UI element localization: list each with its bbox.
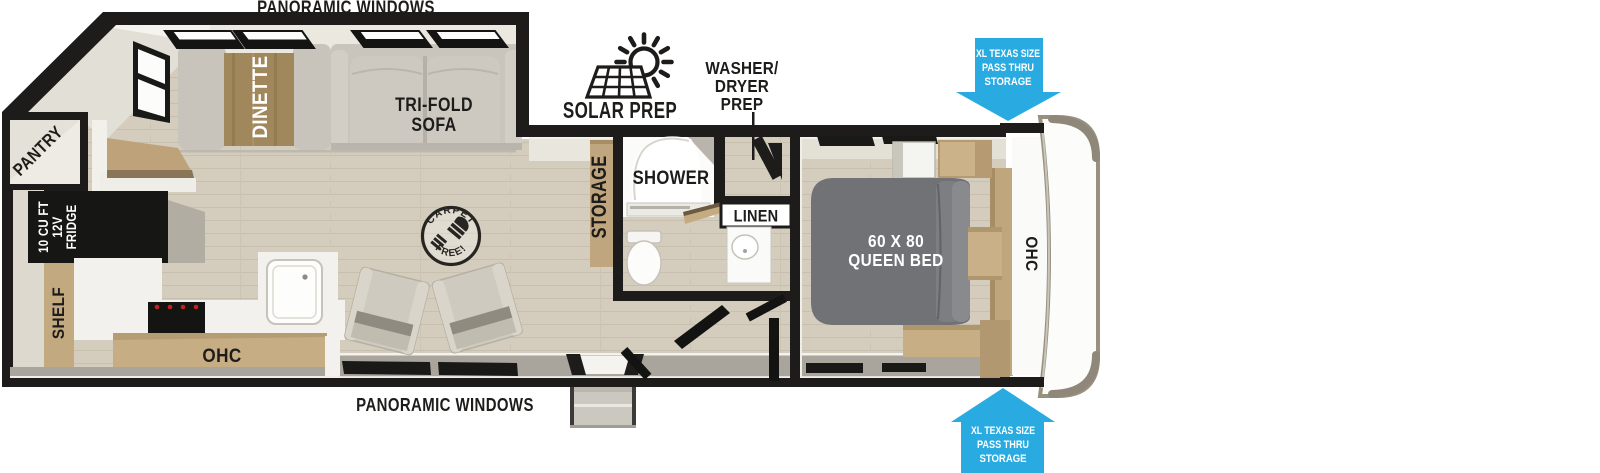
svg-text:10 CU FT: 10 CU FT [36,201,51,253]
svg-text:TRI-FOLD: TRI-FOLD [395,94,473,116]
svg-text:SHELF: SHELF [49,287,68,339]
svg-text:SHOWER: SHOWER [633,167,710,188]
svg-text:XL TEXAS SIZE: XL TEXAS SIZE [971,425,1035,437]
svg-text:OHC: OHC [202,345,241,366]
svg-text:PANORAMIC WINDOWS: PANORAMIC WINDOWS [356,395,534,416]
svg-text:PANORAMIC WINDOWS: PANORAMIC WINDOWS [257,0,435,18]
svg-text:DINETTE: DINETTE [249,55,272,138]
svg-text:PREP: PREP [721,94,764,114]
svg-text:OHC: OHC [1022,236,1041,271]
svg-text:LINEN: LINEN [734,208,779,226]
svg-text:FRIDGE: FRIDGE [64,205,79,250]
svg-text:STORAGE: STORAGE [980,453,1027,465]
svg-text:60 X 80: 60 X 80 [868,232,924,251]
svg-text:XL TEXAS SIZE: XL TEXAS SIZE [976,48,1040,60]
svg-text:12V: 12V [50,216,65,238]
svg-text:SOLAR PREP: SOLAR PREP [563,99,677,124]
svg-text:PASS THRU: PASS THRU [982,62,1034,74]
svg-text:PASS THRU: PASS THRU [977,439,1029,451]
svg-text:STORAGE: STORAGE [587,156,610,239]
svg-text:QUEEN BED: QUEEN BED [848,251,943,270]
svg-text:STORAGE: STORAGE [985,76,1032,88]
svg-text:SOFA: SOFA [411,114,456,136]
